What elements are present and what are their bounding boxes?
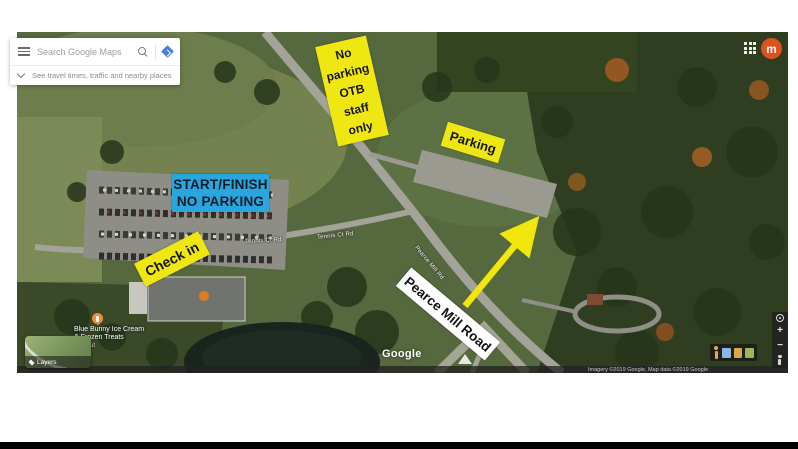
annotation-line: NO PARKING [177,193,264,210]
layers-icon [28,359,34,365]
search-icon[interactable] [138,47,148,57]
screenshot-stage: Pearce Mill Rd Tennis Ct Rd Tennis Ct Rd… [0,0,798,449]
apps-grid-icon[interactable] [744,42,757,55]
attribution-bar: Imagery ©2019 Google, Map data ©2019 Goo… [17,366,788,373]
letterbox-bar [0,442,798,449]
layers-label: Layers [37,359,57,366]
travel-hint-text: See travel times, traffic and nearby pla… [32,71,172,80]
directions-icon[interactable] [161,45,174,58]
divider [155,45,156,59]
imagery-chip-blue[interactable] [722,348,731,358]
account-avatar[interactable]: m [761,38,782,59]
annotation-line: START/FINISH [173,176,267,193]
search-input[interactable] [37,47,131,57]
imagery-chip-green[interactable] [745,348,754,358]
menu-icon[interactable] [18,47,30,56]
imagery-chip-orange[interactable] [734,348,743,358]
annotation-line: only [346,116,374,140]
zoom-out-button[interactable]: − [777,341,783,351]
food-poi-icon[interactable] [92,313,103,324]
travel-hint-row[interactable]: See travel times, traffic and nearby pla… [10,65,180,84]
pegman-strip [710,344,757,361]
zoom-in-button[interactable]: + [777,326,783,336]
pegman-icon[interactable] [713,346,719,359]
poi-name-line1: Blue Bunny Ice Cream [74,326,144,334]
chevron-down-icon [17,69,25,77]
google-watermark: Google [382,348,422,360]
pegman-control-icon[interactable] [777,355,783,366]
search-card: See travel times, traffic and nearby pla… [10,38,180,85]
attribution-text: Imagery ©2019 Google, Map data ©2019 Goo… [588,367,708,373]
map-controls: + − [772,312,788,368]
annotation-start-finish: START/FINISH NO PARKING [172,174,269,212]
my-location-icon[interactable] [776,314,784,322]
layers-control[interactable]: Layers [25,336,91,368]
